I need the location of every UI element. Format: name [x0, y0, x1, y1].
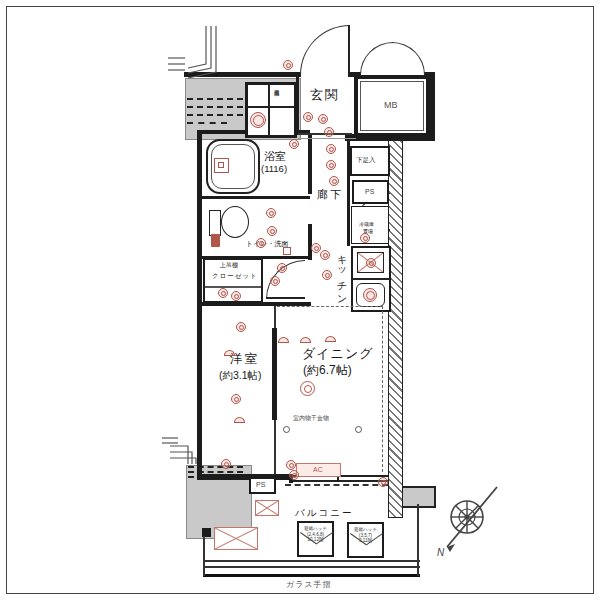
washer-divider	[247, 106, 295, 108]
junction-icon	[300, 381, 315, 396]
wall-outlet-icon	[325, 336, 336, 342]
switch-icon	[283, 247, 291, 255]
closet-label: クローゼット	[212, 272, 258, 279]
bathroom-label: 浴室	[264, 150, 286, 163]
glass-rail-line	[203, 560, 420, 562]
outlet-icon	[329, 176, 339, 186]
sliding-door	[272, 328, 277, 420]
outlet-icon	[286, 460, 296, 470]
hallway-label: 廊下	[317, 188, 343, 201]
bathroom-size: (1116)	[261, 164, 287, 175]
outlet-icon	[283, 60, 293, 70]
wall-outlet-icon	[278, 337, 289, 343]
outlet-icon	[326, 144, 336, 154]
meter-box-label: MB	[384, 100, 398, 110]
wall-outlet-icon	[234, 417, 245, 423]
wall-outlet-icon	[300, 337, 311, 343]
wall	[197, 474, 292, 480]
dining-label: ダイニング	[302, 347, 374, 362]
balcony-side-line	[417, 504, 419, 576]
western-room-size: (約3.1帖)	[219, 369, 262, 381]
outlet-icon	[218, 288, 228, 298]
sink-bowl-icon	[363, 288, 377, 302]
laundry-hook-icon	[283, 426, 290, 433]
outlet-icon	[311, 243, 321, 253]
glass-rail-line	[203, 574, 420, 577]
closet-shelf-label: 上吊棚	[220, 262, 238, 269]
wall-outlet-icon	[224, 350, 235, 356]
hatch-title: 避難ハッチ	[299, 526, 332, 532]
wall	[199, 196, 310, 199]
outlet-icon	[303, 112, 313, 122]
pipe-lines	[187, 114, 243, 116]
outlet-icon	[256, 238, 266, 248]
entrance-step	[298, 138, 356, 139]
kitchen-label: キッチン	[336, 248, 348, 302]
outlet-icon	[267, 226, 277, 236]
room-door-leaf	[266, 297, 305, 299]
outlet-icon	[277, 263, 287, 273]
outlet-icon	[378, 477, 388, 487]
shoe-cabinet-label: 下足入	[356, 156, 376, 163]
outlet-icon	[231, 394, 241, 404]
balcony-label: バルコニー	[295, 508, 353, 519]
counter-divider	[352, 278, 390, 280]
washer-divider	[268, 84, 270, 136]
entrance-label: 玄関	[310, 88, 340, 103]
outlet-icon	[221, 459, 231, 469]
outlet-icon	[289, 470, 299, 480]
ac-label: AC	[313, 466, 323, 474]
glass-rail-line	[203, 566, 420, 568]
outlet-icon	[326, 160, 336, 170]
duct-x-box	[214, 527, 258, 550]
wall	[308, 134, 312, 194]
pipe-space-bottom-label: PS	[256, 481, 265, 489]
glass-rail-label: ガラス手摺	[286, 580, 332, 589]
fridge-label-1: 冷蔵庫	[359, 222, 374, 228]
window-glass-line	[292, 480, 389, 482]
pipe-lines	[187, 122, 227, 124]
wall	[184, 72, 301, 77]
outlet-icon	[289, 139, 299, 149]
floor-plan: MB 玄関 洗濯機置場 浴室 (1116) 廊下 下足入 PS 冷蔵庫 置場 キ…	[0, 0, 600, 600]
outlet-icon	[360, 233, 370, 243]
shared-wall-hatched	[388, 140, 403, 518]
outlet-icon	[270, 276, 280, 286]
laundry-hook-icon	[355, 426, 362, 433]
balcony-side-line	[203, 536, 205, 576]
laundry-hook-label: 室内物干金物	[293, 415, 329, 422]
drain-dash-line	[285, 484, 388, 486]
outlet-icon	[231, 291, 241, 301]
zone-boundary-dashed	[277, 306, 383, 307]
closet-divider	[205, 286, 261, 288]
pipe-lines	[187, 106, 243, 108]
bath-drain-icon	[214, 158, 229, 173]
pipe-lines	[187, 98, 243, 100]
entrance-door-leaf	[348, 25, 350, 77]
duct-x-box	[255, 500, 279, 516]
hatch-title: 避難ハッチ	[349, 527, 382, 533]
outlet-icon	[324, 127, 334, 137]
toilet-tank-icon	[209, 210, 221, 236]
outlet-icon	[266, 208, 276, 218]
dining-size: (約6.7帖)	[303, 364, 352, 378]
outlet-icon	[236, 322, 246, 332]
toilet-bowl-icon	[221, 206, 249, 238]
wall	[308, 224, 312, 260]
stove-burner-icon	[366, 258, 376, 268]
evacuation-hatch-right: 避難ハッチ (3,5,7) 9,11階	[347, 522, 384, 558]
outlet-icon	[320, 250, 330, 260]
outlet-icon	[322, 270, 332, 280]
washer-space	[245, 82, 297, 138]
evacuation-hatch-left: 避難ハッチ (2,4,6,8) 10,12階	[297, 521, 334, 557]
switch-panel-icon	[211, 234, 220, 247]
outlet-icon	[318, 114, 328, 124]
pipe-space-label: PS	[365, 188, 374, 196]
zone-boundary-dashed	[382, 306, 383, 472]
washing-machine-icon	[250, 112, 266, 128]
